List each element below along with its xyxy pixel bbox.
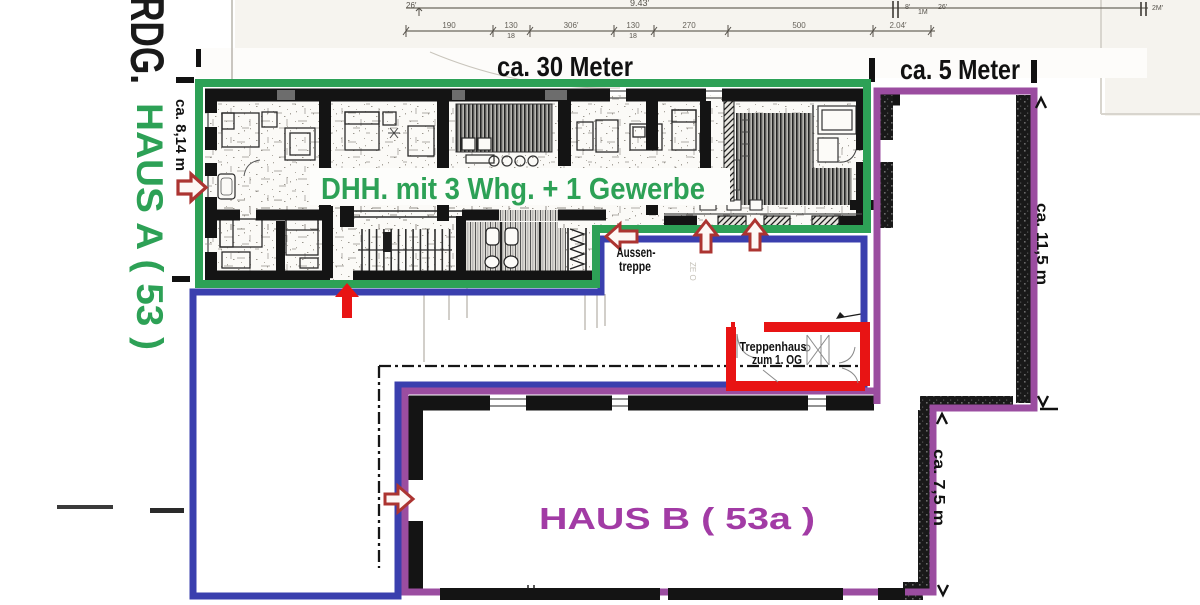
svg-text:ZE O: ZE O [688, 262, 697, 281]
svg-text:18: 18 [629, 33, 637, 40]
svg-text:ca. 7,5 m: ca. 7,5 m [930, 449, 947, 526]
svg-text:18: 18 [507, 33, 515, 40]
svg-text:Treppenhaus: Treppenhaus [740, 340, 807, 354]
svg-text:HAUS A ( 53 ): HAUS A ( 53 ) [129, 103, 170, 350]
svg-text:190: 190 [442, 21, 456, 30]
svg-text:130: 130 [504, 21, 518, 30]
svg-text:treppe: treppe [619, 258, 651, 274]
svg-text:26′: 26′ [938, 4, 948, 11]
svg-text:500: 500 [792, 21, 806, 30]
svg-text:1M: 1M [918, 9, 928, 16]
svg-text:130: 130 [626, 21, 640, 30]
svg-text:ca. 30 Meter: ca. 30 Meter [497, 51, 633, 82]
svg-text:RDG.: RDG. [121, 0, 174, 84]
svg-text:2M′: 2M′ [1152, 5, 1164, 12]
svg-text:9.43′: 9.43′ [630, 0, 650, 8]
svg-text:ca. 11,5 m: ca. 11,5 m [1033, 203, 1050, 285]
svg-text:8′: 8′ [905, 4, 911, 11]
svg-text:306′: 306′ [564, 21, 579, 30]
svg-text:2.04′: 2.04′ [889, 21, 907, 30]
svg-text:ca. 5 Meter: ca. 5 Meter [900, 54, 1020, 85]
svg-text:26′: 26′ [406, 1, 417, 10]
svg-text:DHH. mit 3 Whg. + 1 Gewerbe: DHH. mit 3 Whg. + 1 Gewerbe [321, 171, 705, 206]
svg-text:zum 1. OG: zum 1. OG [752, 353, 802, 367]
svg-text:HAUS B ( 53a ): HAUS B ( 53a ) [539, 501, 815, 536]
svg-text:270: 270 [682, 21, 696, 30]
svg-text:ca. 8,14 m: ca. 8,14 m [172, 99, 189, 171]
